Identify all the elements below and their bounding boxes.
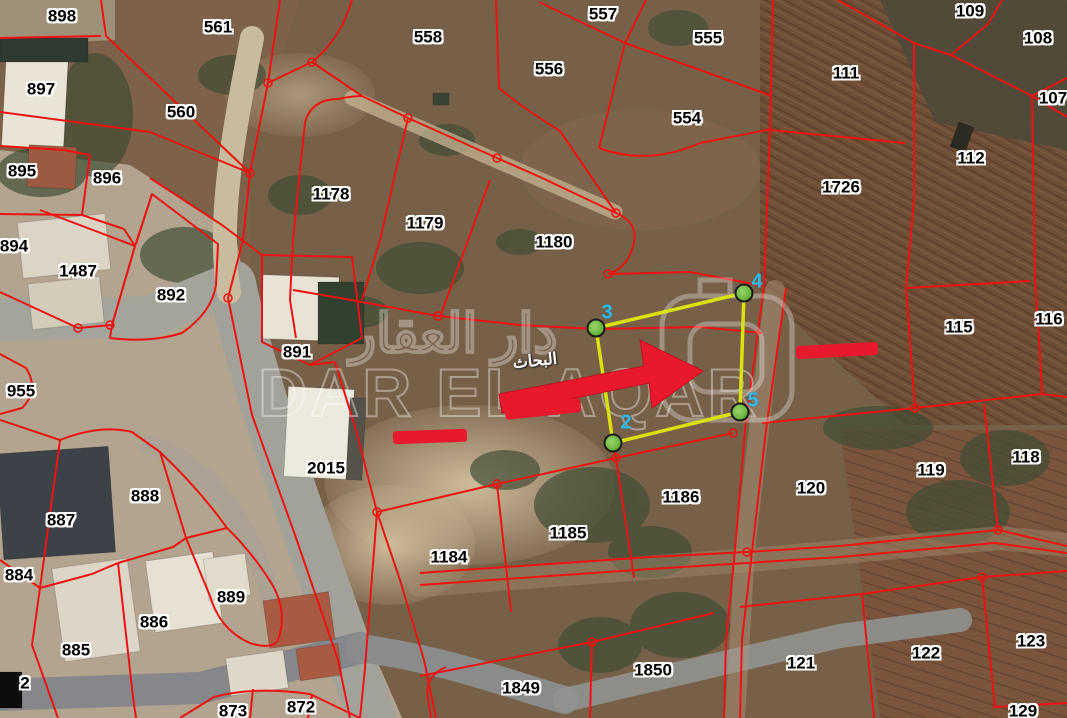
partial-labels-layer: البحاث 220	[0, 0, 1067, 718]
partial-parcel-label-2: 2	[20, 675, 29, 692]
region-name-arabic: البحاث	[512, 349, 558, 374]
partial-parcel-label-20: 20	[652, 358, 671, 375]
map-viewport[interactable]: DAR EL AQAR دار العقار 89856155855755555…	[0, 0, 1067, 718]
